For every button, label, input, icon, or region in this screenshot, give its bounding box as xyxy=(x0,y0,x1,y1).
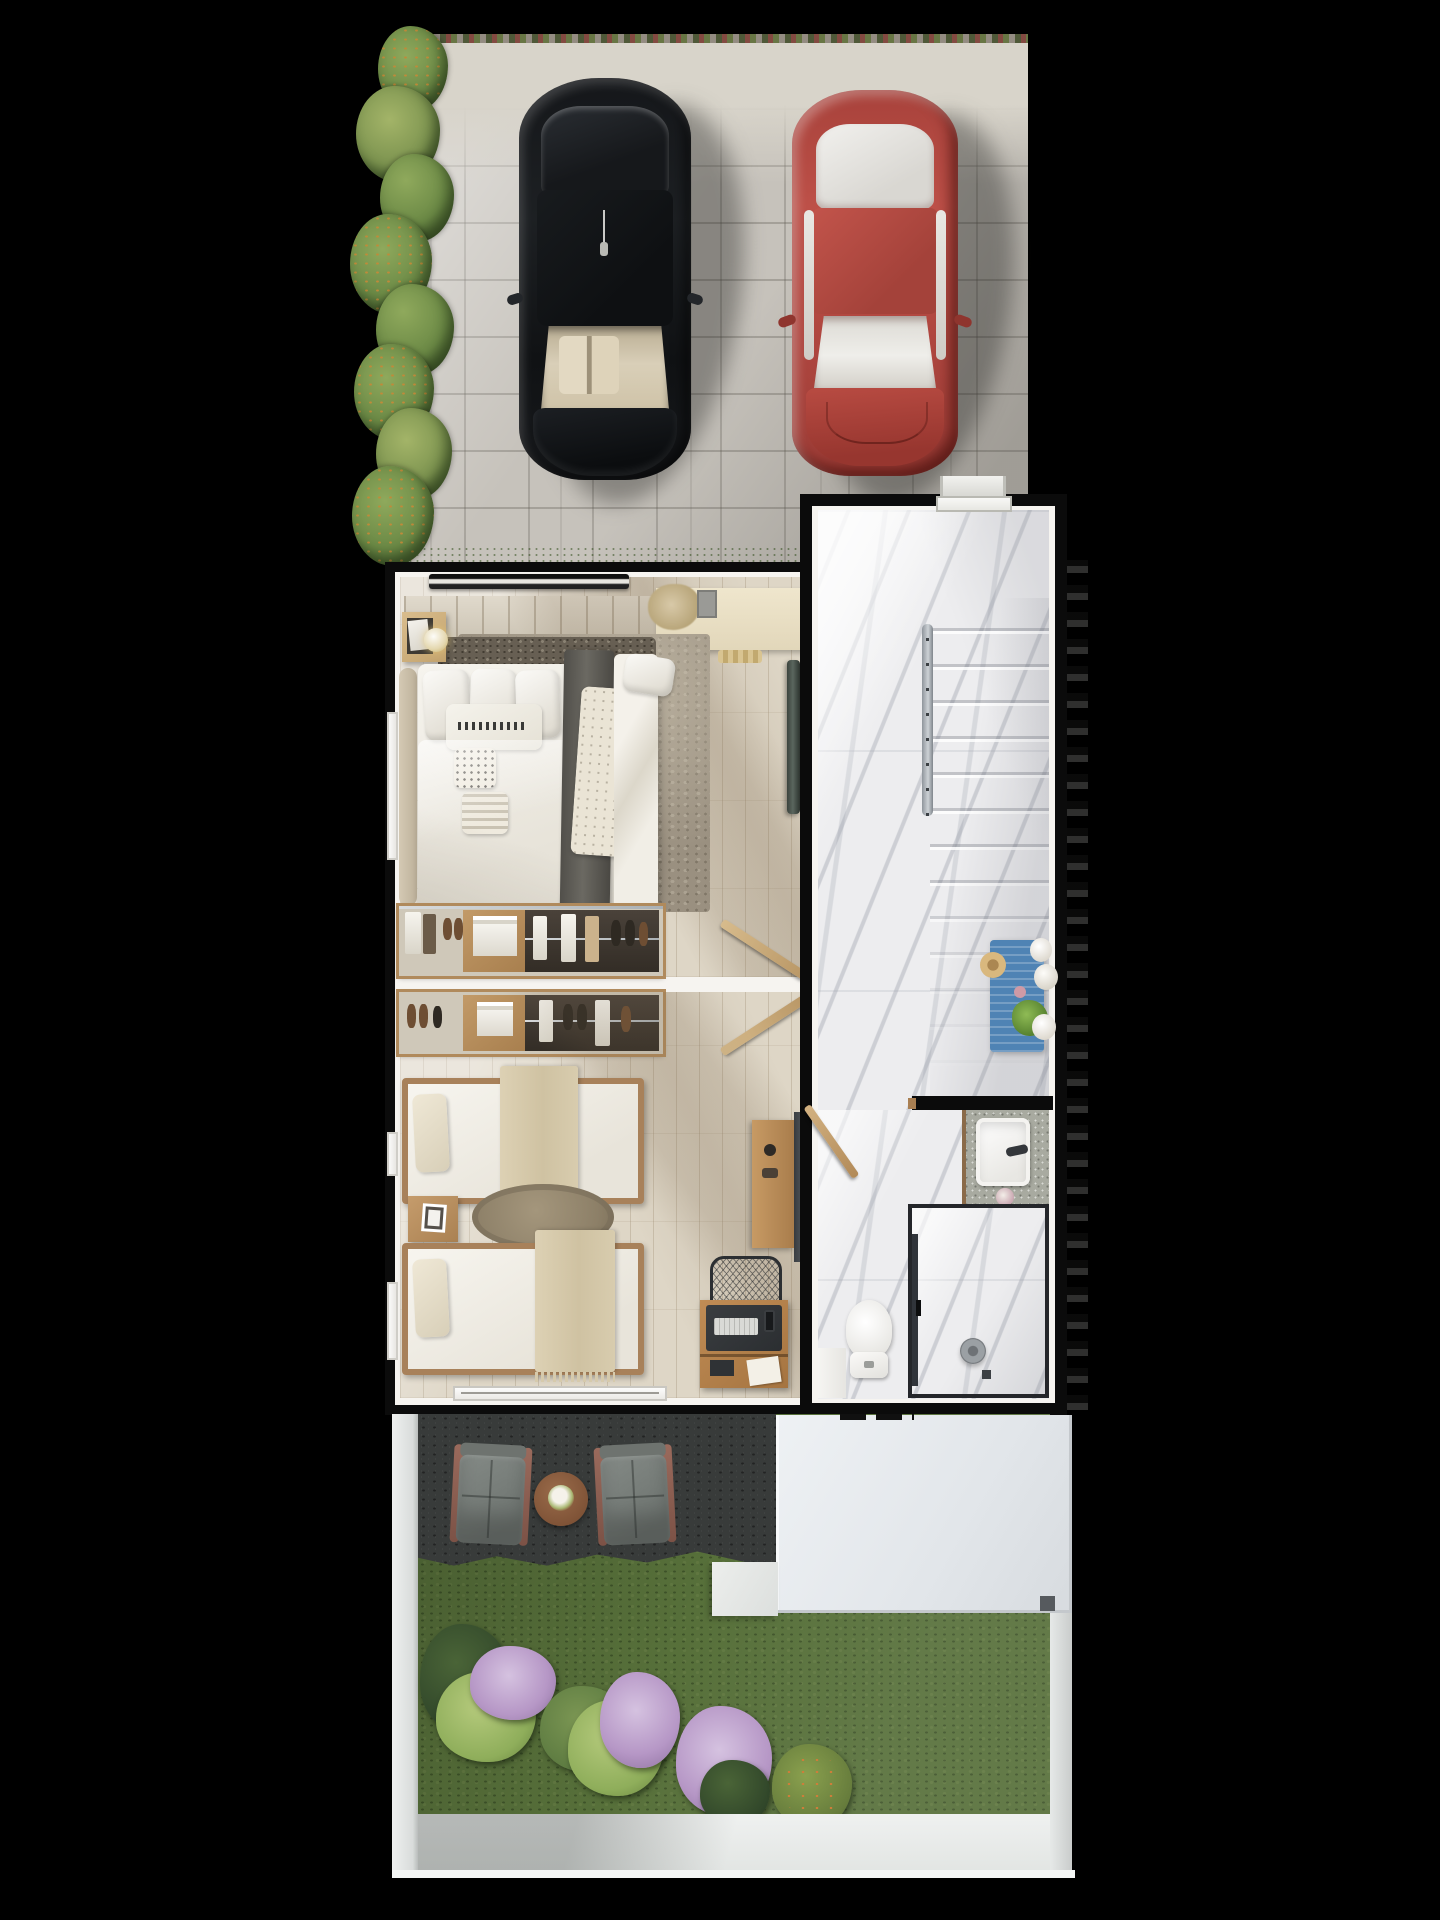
black-car-mirror-left xyxy=(506,292,524,306)
floor-drain xyxy=(982,1370,991,1379)
window xyxy=(387,1282,398,1360)
hanging-clothes xyxy=(405,912,421,954)
backyard xyxy=(392,1414,1075,1878)
flush-button xyxy=(864,1361,874,1368)
outdoor-armchair xyxy=(449,1442,532,1548)
photo-frame xyxy=(421,1203,447,1233)
shoes xyxy=(611,920,621,946)
pillow xyxy=(412,1258,450,1338)
hanging-clothes xyxy=(423,914,436,954)
bathroom-ledge xyxy=(818,1348,846,1398)
terrace-roof xyxy=(776,1415,1072,1613)
nightstand xyxy=(402,612,446,662)
shoes xyxy=(443,918,452,940)
red-car-side-glass-left xyxy=(804,210,814,360)
floor-basket xyxy=(718,650,762,663)
floor-plan-render xyxy=(0,0,1440,1920)
bedside-bench xyxy=(399,668,417,906)
red-car-mirror-left xyxy=(777,313,797,329)
window-marks xyxy=(840,1414,914,1420)
folded-towels xyxy=(473,916,517,956)
red-car-side-glass-right xyxy=(936,210,946,360)
black-car xyxy=(519,78,691,480)
table-lamp xyxy=(424,628,448,652)
red-car-hood-crease xyxy=(826,402,928,444)
chair-cushion xyxy=(600,1454,671,1545)
floating-wall-desk xyxy=(752,1120,794,1248)
straw-hat xyxy=(980,952,1006,978)
hedge-bush xyxy=(352,466,434,566)
black-car-roof xyxy=(537,190,673,326)
building-edge-shadow xyxy=(1067,560,1088,1410)
black-car-antenna xyxy=(603,210,605,244)
terrace-step xyxy=(712,1562,778,1616)
double-bed xyxy=(418,664,658,908)
table-flowers xyxy=(548,1485,574,1511)
ceiling-vent xyxy=(429,574,629,589)
nightstand xyxy=(408,1196,458,1242)
red-car-roof xyxy=(812,208,938,314)
entry-step xyxy=(940,476,1006,496)
desk-decor xyxy=(764,1144,776,1156)
hanging-clothes xyxy=(533,916,547,960)
red-car xyxy=(792,90,958,476)
yard-wall-edge xyxy=(392,1870,1075,1878)
shrub-purple xyxy=(600,1672,680,1768)
master-wardrobe xyxy=(399,906,663,976)
shower-floor xyxy=(912,1208,1045,1394)
door-jamb xyxy=(908,1098,916,1109)
desk-decor xyxy=(762,1168,778,1178)
window xyxy=(387,712,398,860)
vase xyxy=(1030,938,1052,962)
bed-throw xyxy=(535,1230,615,1372)
black-car-hood xyxy=(533,408,677,476)
vase xyxy=(1034,964,1058,990)
phone xyxy=(764,1310,775,1332)
coffee-table xyxy=(534,1472,588,1526)
roof-drain xyxy=(1040,1596,1055,1611)
vanity-counter xyxy=(962,1110,1049,1208)
keyboard xyxy=(714,1318,758,1335)
shower-door-handle xyxy=(916,1300,921,1316)
hallway-block xyxy=(800,494,1067,1415)
walkway xyxy=(418,1814,1072,1872)
bathroom-wall xyxy=(912,1096,1053,1110)
shrub-purple xyxy=(470,1646,556,1720)
chair-cushion xyxy=(455,1454,526,1545)
vase xyxy=(1032,1014,1056,1040)
desk xyxy=(700,1300,788,1388)
hanging-clothes xyxy=(585,916,599,962)
window xyxy=(387,1132,398,1176)
shower-drain xyxy=(960,1338,986,1364)
red-car-windshield xyxy=(814,316,936,388)
shoes xyxy=(625,920,635,946)
shoes xyxy=(639,922,648,946)
stair-handrail xyxy=(922,624,933,816)
wall-tv xyxy=(787,660,800,814)
driveway xyxy=(400,34,1028,566)
toilet-tank xyxy=(850,1352,888,1378)
entry-door xyxy=(936,496,1012,512)
outdoor-armchair xyxy=(593,1442,676,1548)
storage-box xyxy=(710,1360,734,1376)
hedge xyxy=(350,26,462,566)
bedroom-block xyxy=(385,562,832,1415)
black-car-antenna-base xyxy=(600,242,608,256)
corner-pillow xyxy=(621,652,676,697)
wardrobe-rail xyxy=(399,906,663,909)
black-car-interior xyxy=(559,336,619,394)
hanging-clothes xyxy=(561,914,576,962)
yard-wall xyxy=(1050,1613,1072,1874)
shoes xyxy=(454,918,463,940)
walk-in-shower xyxy=(908,1204,1049,1398)
papers xyxy=(746,1356,781,1386)
border-plants xyxy=(400,34,1028,43)
red-car-rear-glass xyxy=(816,124,934,210)
sliding-window xyxy=(453,1386,667,1401)
black-car-rear-glass xyxy=(541,106,669,198)
toilet-bowl xyxy=(846,1300,892,1358)
yard-wall xyxy=(392,1414,418,1874)
flower xyxy=(1014,986,1026,998)
pillow xyxy=(412,1093,450,1173)
shelf-book xyxy=(697,590,717,618)
